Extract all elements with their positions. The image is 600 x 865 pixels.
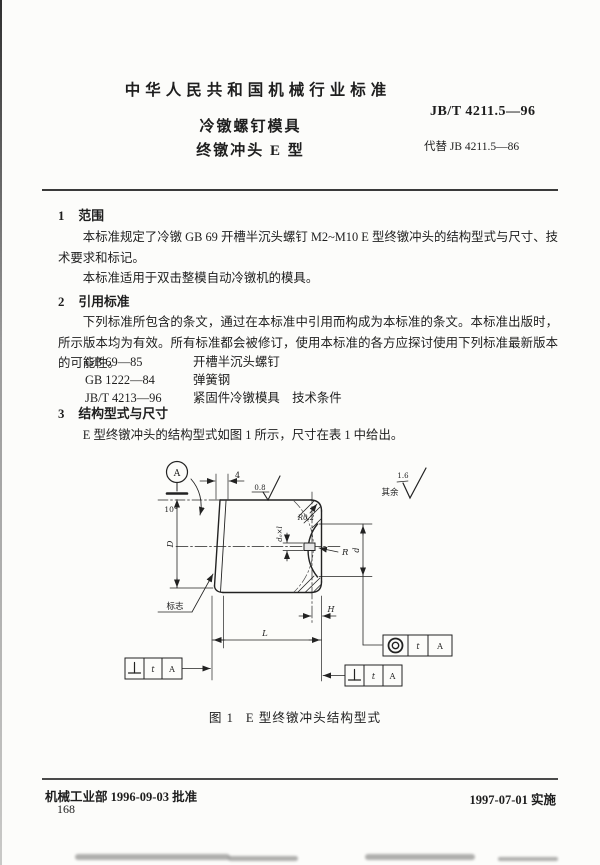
section-3-number: 3 (58, 407, 64, 421)
pin-dimension-label: d₀×l (276, 526, 284, 541)
doc-title: 冷镦螺钉模具 终镦冲头 E 型 (58, 115, 443, 163)
reference-code: GB 69—85 (85, 355, 193, 370)
footer-divider (42, 778, 558, 780)
section-1-heading: 1范围 (58, 205, 104, 224)
figure-caption-text: E 型终镦冲头结构型式 (246, 711, 381, 725)
cavity-diameter-label: d (352, 547, 361, 552)
header-divider (42, 189, 558, 191)
scan-edge-artifact (0, 0, 2, 865)
reference-name: 开槽半沉头螺钉 (193, 355, 280, 369)
scan-smudge-artifact (365, 854, 475, 860)
org-title: 中华人民共和国机械行业标准 (58, 78, 458, 100)
tolerance-datum: A (389, 672, 396, 681)
ejector-pin-hole (304, 543, 315, 551)
implementation-note: 1997-07-01 实施 (470, 789, 556, 808)
section-3-title: 结构型式与尺寸 (78, 407, 168, 421)
depth-label: H (327, 605, 336, 614)
section-2-number: 2 (58, 295, 64, 309)
section-1-paragraph-1: 本标准规定了冷镦 GB 69 开槽半沉头螺钉 M2~M10 E 型终镦冲头的结构… (58, 227, 558, 268)
scan-smudge-artifact (75, 854, 230, 860)
replaces-note: 代替 JB 4211.5—86 (424, 138, 519, 154)
tolerance-value: t (372, 672, 376, 681)
standard-document-page: 中华人民共和国机械行业标准 冷镦螺钉模具 终镦冲头 E 型 JB/T 4211.… (0, 0, 600, 865)
section-1-paragraph-2: 本标准适用于双击整模自动冷镦机的模具。 (58, 268, 558, 289)
angle-label: 10° (164, 505, 178, 514)
section-3-paragraph-1: E 型终镦冲头的结构型式如图 1 所示，尺寸在表 1 中给出。 (58, 425, 558, 446)
figure-1-drawing: A 10° 4 0.8 (100, 448, 500, 708)
scan-smudge-artifact (498, 857, 558, 861)
doc-title-line2: 终镦冲头 E 型 (58, 139, 443, 163)
reference-row: GB 1222—84弹簧钢 (85, 370, 230, 388)
standard-number: JB/T 4211.5—96 (430, 104, 536, 120)
section-2-title: 引用标准 (78, 295, 129, 309)
punch-technical-drawing: A 10° 4 0.8 (100, 448, 500, 708)
section-1-number: 1 (58, 209, 64, 223)
perpendicularity-frame-left (125, 658, 211, 679)
concentricity-icon (389, 639, 403, 653)
page-number: 168 (57, 802, 75, 817)
scan-smudge-artifact (228, 856, 298, 861)
perpendicularity-icon (349, 670, 361, 681)
length-label: L (261, 629, 268, 639)
perpendicularity-icon (129, 663, 141, 674)
cavity-radius-label: R (341, 548, 349, 558)
corner-radius-label: R0.2 (297, 514, 315, 522)
reference-row: GB 69—85开槽半沉头螺钉 (85, 352, 280, 370)
section-2-heading: 2引用标准 (58, 291, 130, 310)
surface-finish-value: 0.8 (254, 484, 265, 492)
figure-number: 图 1 (209, 711, 234, 725)
figure-caption: 图 1E 型终镦冲头结构型式 (0, 707, 590, 726)
angle-arc (191, 479, 201, 515)
taper-length-label: 4 (235, 471, 240, 480)
reference-code: GB 1222—84 (85, 373, 193, 388)
rest-finish-value: 1.6 (397, 472, 409, 480)
tolerance-value: t (151, 665, 155, 674)
reference-name: 弹簧钢 (193, 373, 230, 387)
tolerance-datum: A (168, 665, 175, 674)
outer-diameter-label: D (166, 540, 176, 548)
rest-label: 其余 (381, 487, 399, 498)
tolerance-datum: A (436, 642, 443, 651)
section-1-title: 范围 (78, 209, 104, 223)
tolerance-value: t (416, 642, 420, 651)
doc-title-line1: 冷镦螺钉模具 (58, 115, 443, 139)
mark-label: 标志 (166, 601, 184, 612)
reference-name: 紧固件冷镦模具 技术条件 (193, 391, 342, 405)
datum-a-label: A (173, 469, 181, 479)
section-3-heading: 3结构型式与尺寸 (58, 403, 168, 422)
